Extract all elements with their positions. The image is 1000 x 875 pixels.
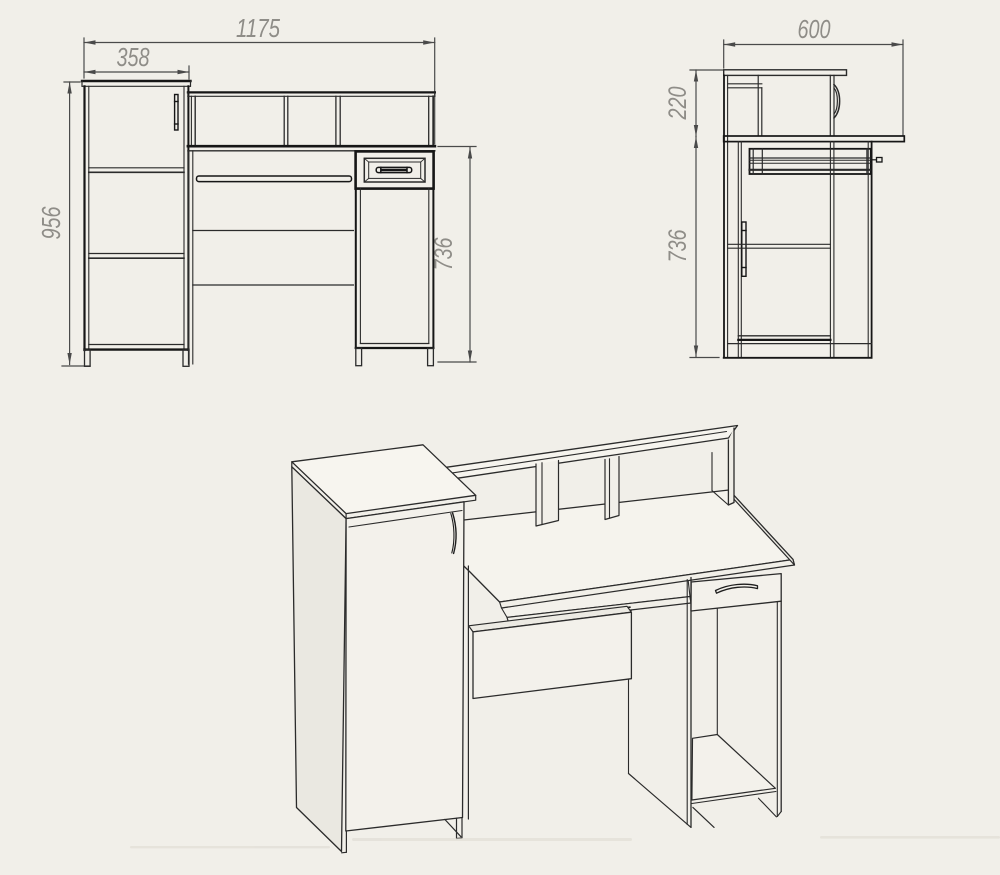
svg-text:600: 600 [798,14,831,44]
svg-text:736: 736 [664,229,692,262]
svg-text:1175: 1175 [236,13,280,43]
svg-text:220: 220 [664,86,692,120]
svg-text:358: 358 [117,42,150,72]
svg-text:956: 956 [36,206,66,239]
